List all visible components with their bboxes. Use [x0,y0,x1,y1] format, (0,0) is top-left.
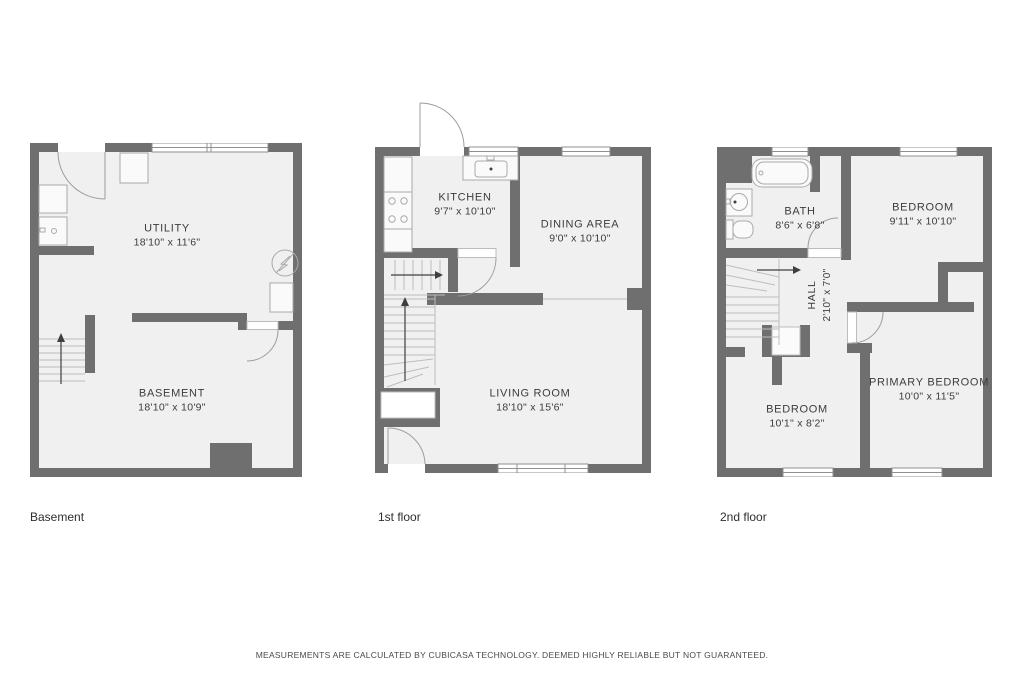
bathtub-icon [752,159,812,187]
disclaimer-text: MEASUREMENTS ARE CALCULATED BY CUBICASA … [0,650,1024,660]
room-name: KITCHEN [434,191,496,205]
room-dims: 10'1" x 8'2" [766,418,828,432]
room-label-bedroom-2: BEDROOM 10'1" x 8'2" [766,403,828,432]
basement-windows [152,143,268,152]
floorplan-page: UTILITY 18'10" x 11'6" BASEMENT 18'10" x… [0,0,1024,683]
door-icon [388,464,425,473]
room-label-utility: UTILITY 18'10" x 11'6" [134,222,201,251]
room-dims: 18'10" x 10'9" [138,402,206,416]
basement-floor-area [30,143,302,477]
room-dims: 8'6" x 6'8" [775,220,824,234]
first-floor-floorplan: KITCHEN 9'7" x 10'10" DINING AREA 9'0" x… [375,95,651,473]
door-icon [247,322,278,330]
second-floor-drawing [717,147,992,477]
entry-door-icon [420,147,464,156]
room-label-bath: BATH 8'6" x 6'8" [775,205,824,234]
room-label-bedroom-1: BEDROOM 9'11" x 10'10" [890,201,957,230]
room-name: BASEMENT [138,387,206,401]
room-dims: 9'0" x 10'10" [541,233,620,247]
room-name: HALL [806,269,820,322]
room-label-living-room: LIVING ROOM 18'10" x 15'6" [489,387,570,416]
room-dims: 9'7" x 10'10" [434,206,496,220]
room-dims: 2'10" x 7'0" [821,269,834,322]
floor-label-1st-floor: 1st floor [378,510,421,524]
room-dims: 10'0" x 11'5" [869,391,989,405]
hall-closet [772,327,800,355]
room-name: BEDROOM [766,403,828,417]
room-name: UTILITY [134,222,201,236]
wall-mass [726,156,752,183]
utility-box-icon [270,283,293,312]
bath-door-icon [808,249,841,258]
room-label-kitchen: KITCHEN 9'7" x 10'10" [434,191,496,220]
room-dims: 9'11" x 10'10" [890,216,957,230]
room-name: BEDROOM [890,201,957,215]
stove-icon [384,192,412,229]
cabinet-icon [120,153,148,183]
room-label-hall: HALL 2'10" x 7'0" [806,269,834,322]
room-name: LIVING ROOM [489,387,570,401]
room-dims: 18'10" x 11'6" [134,237,201,251]
room-label-basement: BASEMENT 18'10" x 10'9" [138,387,206,416]
room-dims: 18'10" x 15'6" [489,402,570,416]
toilet-icon [726,220,733,239]
basement-drawing [30,143,302,477]
door-icon [458,249,496,258]
counter-icon [39,185,67,213]
closet-under-stairs [381,392,435,418]
room-label-primary-bedroom: PRIMARY BEDROOM 10'0" x 11'5" [869,376,989,405]
room-name: PRIMARY BEDROOM [869,376,989,390]
second-floor-floorplan: BATH 8'6" x 6'8" BEDROOM 9'11" x 10'10" … [717,147,992,477]
room-label-dining-area: DINING AREA 9'0" x 10'10" [541,218,620,247]
room-name: BATH [775,205,824,219]
room-name: DINING AREA [541,218,620,232]
first-floor-drawing [375,95,651,473]
floor-label-2nd-floor: 2nd floor [720,510,767,524]
door-icon [58,143,105,152]
bedroom-door-icon [848,312,857,343]
chimney-block [210,443,252,468]
floor-label-basement: Basement [30,510,84,524]
basement-floorplan: UTILITY 18'10" x 11'6" BASEMENT 18'10" x… [30,143,302,477]
